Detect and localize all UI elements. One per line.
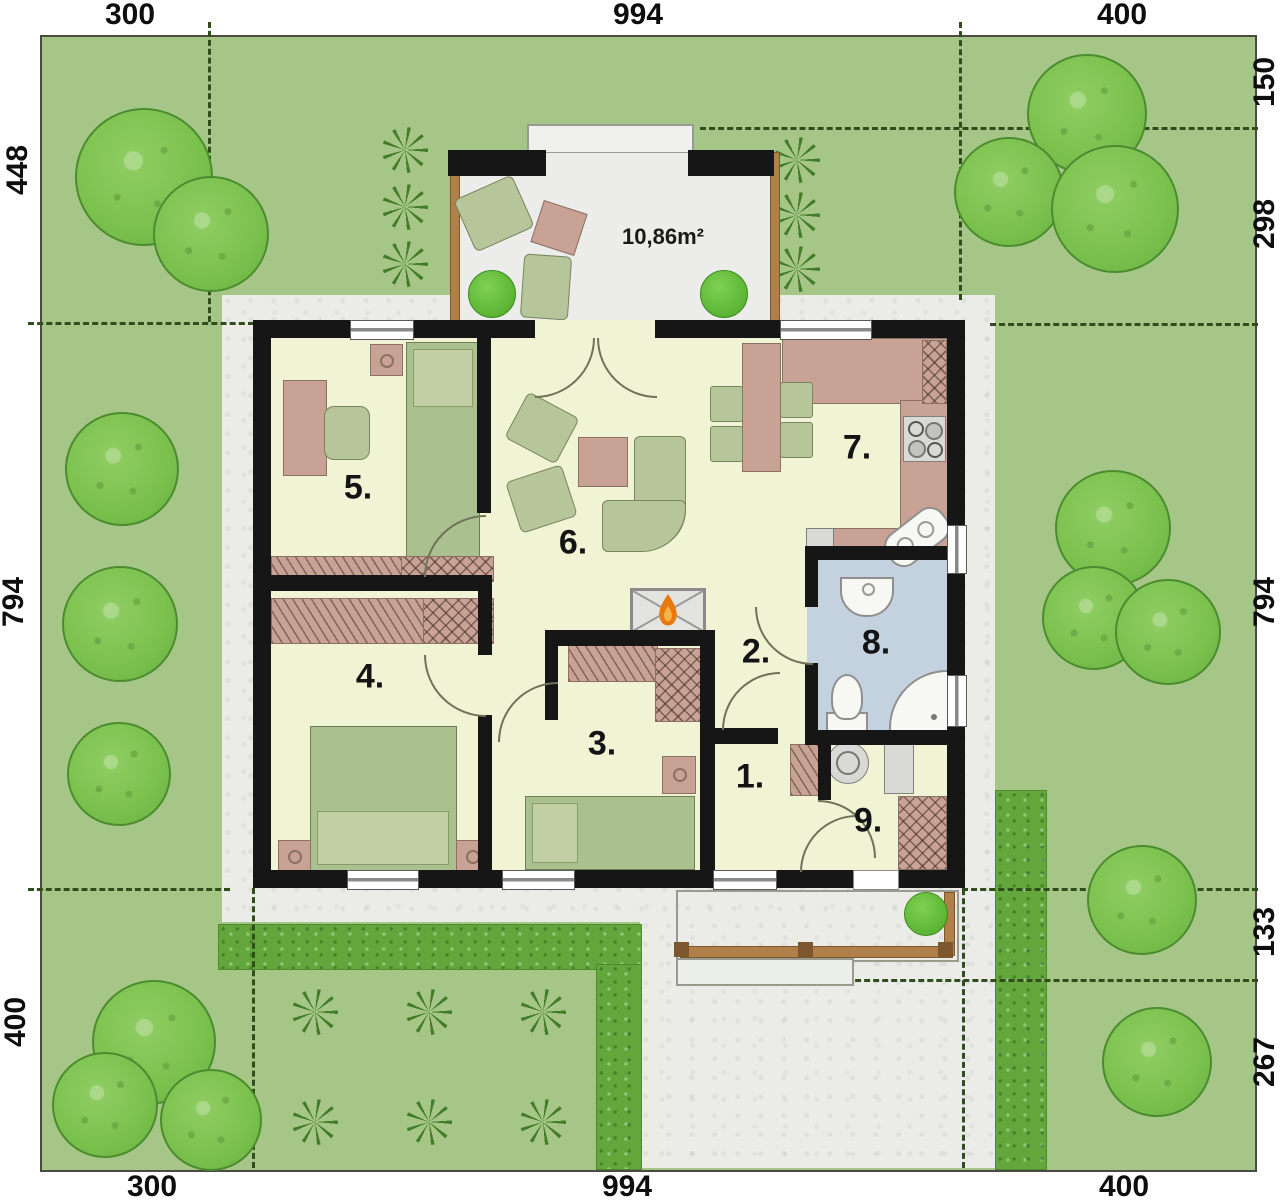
tree-icon <box>1051 145 1179 273</box>
tree-icon <box>1115 579 1221 685</box>
room-label-3: 3. <box>588 725 616 764</box>
wall <box>271 575 492 591</box>
window <box>947 525 967 574</box>
setback-line-vertical-bottom-right <box>962 880 965 1168</box>
room-label-4: 4. <box>356 658 384 697</box>
room-label-9: 9. <box>854 802 882 841</box>
bed-double <box>310 726 457 872</box>
tree-icon <box>1087 845 1197 955</box>
wardrobe <box>790 744 820 796</box>
lamp-icon <box>288 850 302 864</box>
wall <box>947 725 965 888</box>
wall <box>417 870 502 888</box>
dim-left-400: 400 <box>0 997 33 1047</box>
terrace-rail-left <box>450 152 460 322</box>
wall <box>253 320 271 888</box>
terrace-wall-right <box>688 150 774 176</box>
lamp-icon <box>380 354 394 368</box>
dim-left-448: 448 <box>1 145 35 195</box>
nightstand <box>278 840 311 872</box>
burner-icon <box>927 442 943 458</box>
toilet-bowl <box>831 674 863 720</box>
wall <box>818 745 831 800</box>
cabinet <box>884 742 914 794</box>
fireplace <box>630 588 706 634</box>
porch-bush-icon <box>904 892 948 936</box>
tree-icon <box>52 1052 158 1158</box>
tree-icon <box>62 566 178 682</box>
tree-icon <box>67 722 171 826</box>
dining-chair <box>710 386 743 422</box>
wall <box>655 320 780 338</box>
dim-bottom-994: 994 <box>602 1170 652 1204</box>
wall <box>775 870 853 888</box>
wall <box>477 338 491 513</box>
wall <box>805 730 947 745</box>
setback-line-horizontal-top-right <box>700 127 1258 130</box>
room-label-6: 6. <box>559 524 587 563</box>
sink-bowl-icon <box>914 518 938 542</box>
window <box>713 870 777 890</box>
wall <box>805 560 818 607</box>
wall <box>478 591 492 655</box>
dim-top-300: 300 <box>105 0 155 32</box>
window <box>780 320 872 340</box>
room-label-1: 1. <box>736 758 764 797</box>
tree-icon <box>1102 1007 1212 1117</box>
room-label-8: 8. <box>862 624 890 663</box>
shrub-icon <box>292 1099 338 1145</box>
dim-bottom-400: 400 <box>1099 1170 1149 1204</box>
room-label-2: 2. <box>742 633 770 672</box>
burner-icon <box>925 422 943 440</box>
dining-chair <box>710 426 743 462</box>
burner-icon <box>908 421 924 437</box>
dim-left-794: 794 <box>0 577 31 627</box>
pillow <box>413 349 473 407</box>
dim-right-150: 150 <box>1248 57 1280 107</box>
tree-icon <box>65 412 179 526</box>
tree-icon <box>160 1069 262 1171</box>
shrub-icon <box>406 1099 452 1145</box>
setback-line-horizontal-left <box>28 322 254 325</box>
dim-top-400: 400 <box>1097 0 1147 32</box>
shrub-icon <box>382 241 428 287</box>
desk-chair <box>324 406 370 460</box>
room-label-7: 7. <box>843 429 871 468</box>
wall <box>573 870 713 888</box>
room-label-5: 5. <box>344 469 372 508</box>
shrub-icon <box>382 184 428 230</box>
pillow <box>532 803 578 863</box>
terrace-bush-icon <box>468 270 516 318</box>
wall <box>700 728 778 744</box>
wall <box>545 630 713 646</box>
porch-post <box>798 942 813 957</box>
blanket <box>317 811 449 865</box>
desk <box>283 380 327 476</box>
cabinet <box>655 648 701 722</box>
wall <box>805 546 947 560</box>
tree-icon <box>153 176 269 292</box>
dining-table <box>742 343 781 472</box>
dim-right-794: 794 <box>1248 577 1280 627</box>
dining-chair <box>780 382 813 418</box>
wall <box>478 715 492 870</box>
terrace-rail-right <box>770 152 780 322</box>
shrub-icon <box>292 989 338 1035</box>
window <box>347 870 419 890</box>
dining-chair <box>780 422 813 458</box>
drain-icon <box>931 714 937 720</box>
porch-post <box>938 942 953 957</box>
bed-single <box>525 796 695 870</box>
dim-right-267: 267 <box>1248 1037 1280 1087</box>
terrace-area-label: 10,86m² <box>622 224 704 250</box>
shrub-icon <box>774 137 820 183</box>
dim-right-133: 133 <box>1248 907 1280 957</box>
dim-right-298: 298 <box>1248 199 1280 249</box>
fridge <box>922 340 947 404</box>
shrub-icon <box>520 989 566 1035</box>
setback-line-vertical-top-right <box>959 22 962 300</box>
hedge-bottom-left-horizontal <box>218 924 642 970</box>
entrance-door <box>853 870 899 890</box>
wardrobe <box>568 640 658 682</box>
lamp-icon <box>673 768 687 782</box>
window <box>502 870 575 890</box>
porch-post <box>674 942 689 957</box>
wall <box>947 320 965 525</box>
site-plan: 10,86m² <box>0 0 1280 1204</box>
coffee-table <box>578 437 628 487</box>
wall <box>947 572 965 675</box>
shrub-icon <box>774 246 820 292</box>
wardrobe <box>898 796 947 870</box>
entrance-step <box>676 958 854 986</box>
washing-machine <box>827 742 869 784</box>
window <box>350 320 414 340</box>
faucet-icon <box>862 583 875 596</box>
wall <box>412 320 535 338</box>
tree-icon <box>1055 470 1171 586</box>
setback-line-horizontal-bottom-right2 <box>810 979 1258 982</box>
wall <box>253 870 347 888</box>
stove <box>903 416 946 462</box>
porch-beam <box>680 946 953 958</box>
burner-icon <box>908 440 926 458</box>
nightstand <box>370 344 403 376</box>
tree-icon <box>954 137 1064 247</box>
window <box>947 675 967 727</box>
shrub-icon <box>520 1099 566 1145</box>
wall <box>700 630 715 870</box>
dim-bottom-300: 300 <box>127 1170 177 1204</box>
terrace-chair <box>520 253 572 320</box>
setback-line-horizontal-bottom-left <box>28 888 230 891</box>
shrub-icon <box>406 989 452 1035</box>
setback-line-horizontal-right <box>990 323 1258 326</box>
terrace-bush-icon <box>700 270 748 318</box>
wall <box>897 870 965 888</box>
hedge-bottom-left-vertical <box>596 964 642 1170</box>
dim-top-994: 994 <box>613 0 663 32</box>
nightstand <box>662 756 696 794</box>
washer-drum-icon <box>836 751 860 775</box>
terrace-wall-left <box>448 150 546 176</box>
wardrobe <box>271 598 425 644</box>
shrub-icon <box>382 127 428 173</box>
shrub-icon <box>774 192 820 238</box>
